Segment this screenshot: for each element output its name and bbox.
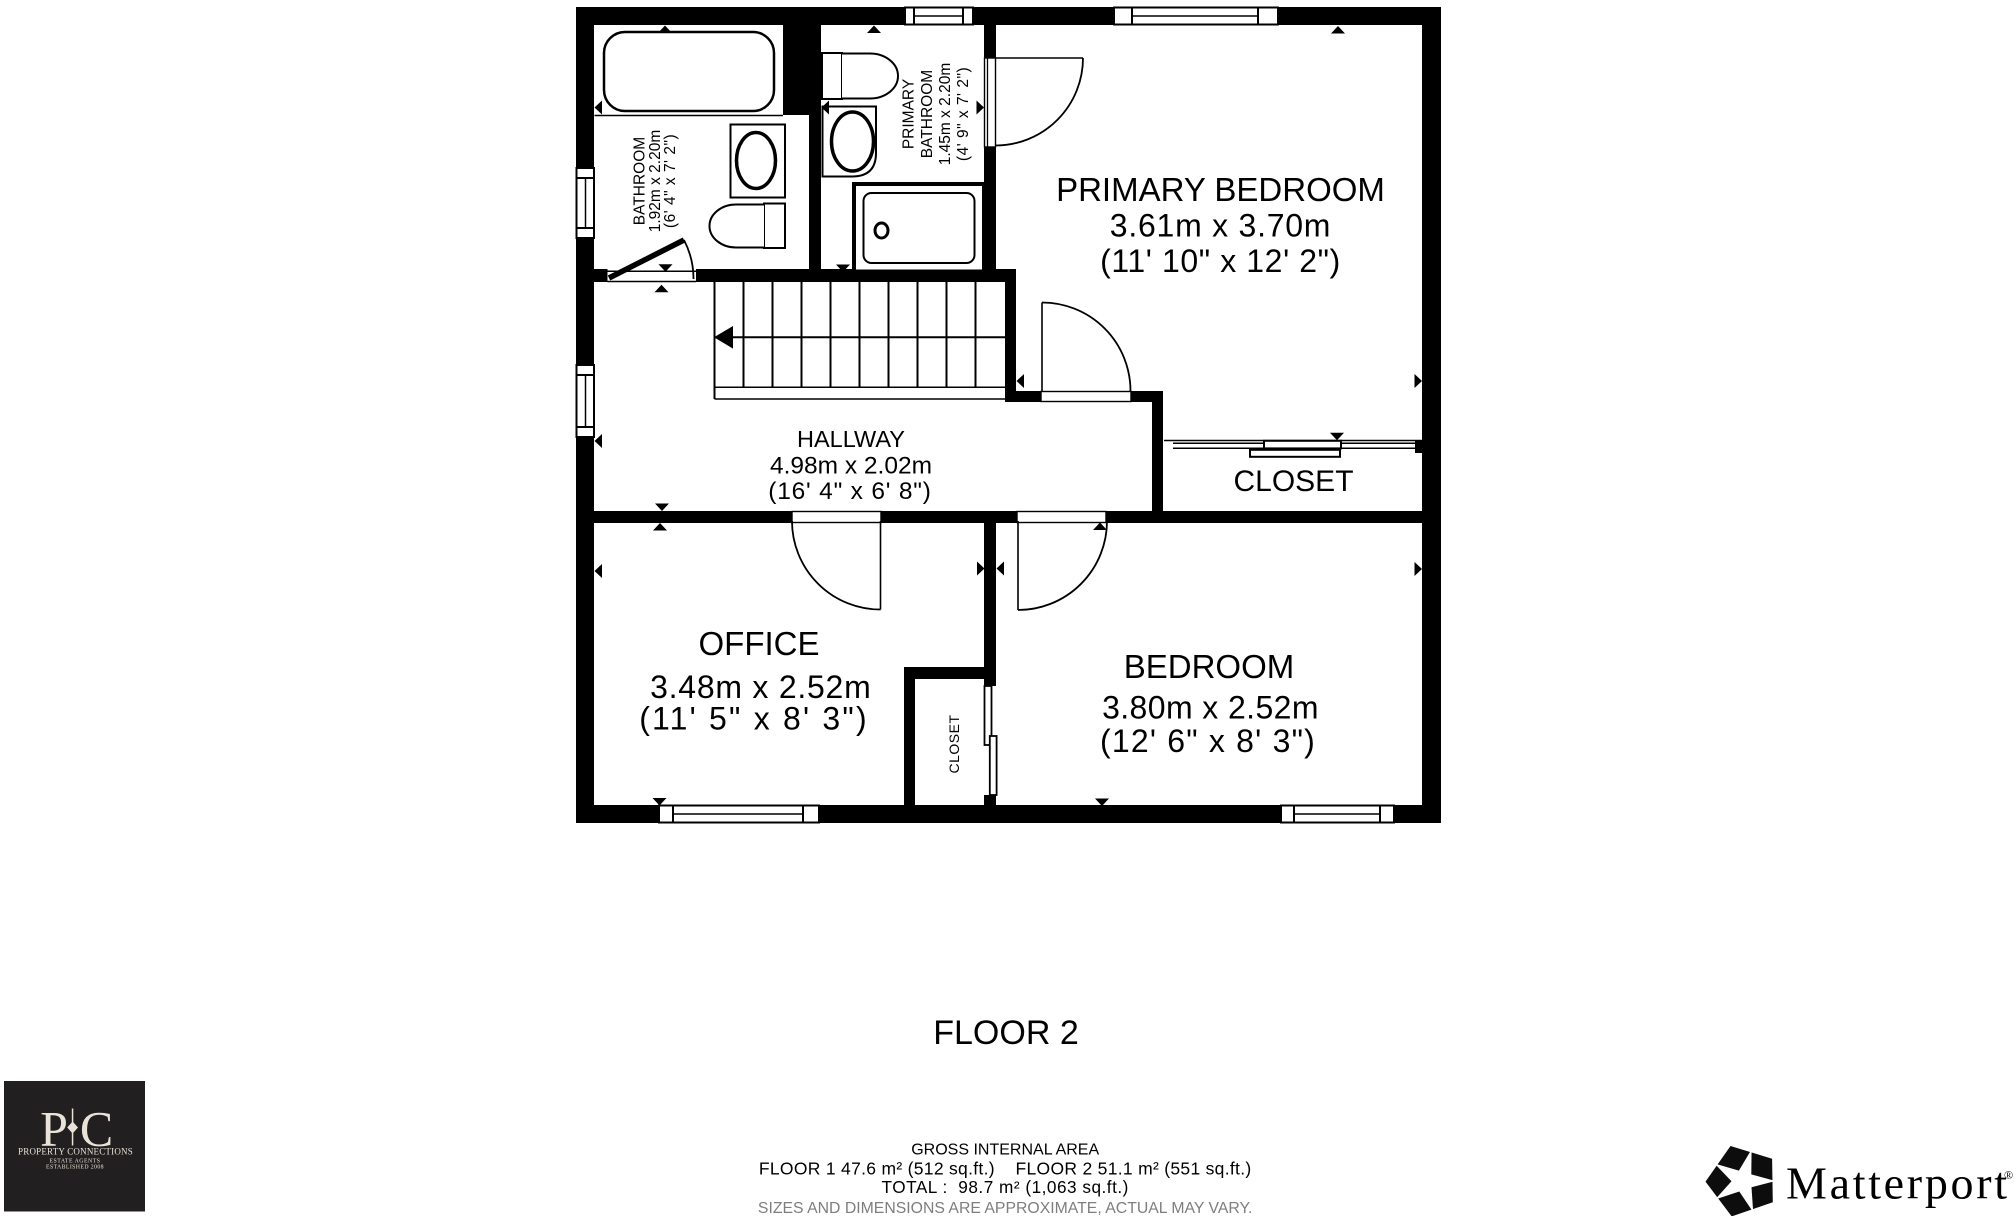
svg-text:(4' 9" x 7' 2"): (4' 9" x 7' 2") <box>955 67 972 161</box>
svg-text:4.98m x 2.02m: 4.98m x 2.02m <box>770 453 932 480</box>
svg-text:FLOOR 2: FLOOR 2 <box>933 1014 1078 1052</box>
svg-text:PROPERTY CONNECTIONS: PROPERTY CONNECTIONS <box>18 1147 133 1157</box>
svg-text:GROSS INTERNAL AREA: GROSS INTERNAL AREA <box>911 1142 1099 1159</box>
svg-text:OFFICE: OFFICE <box>699 625 820 662</box>
svg-text:(11' 5" x 8' 3"): (11' 5" x 8' 3") <box>639 701 869 737</box>
svg-text:(6' 4" x 7' 2"): (6' 4" x 7' 2") <box>662 134 679 228</box>
svg-text:(11' 10" x 12' 2"): (11' 10" x 12' 2") <box>1100 243 1341 279</box>
svg-text:ESTABLISHED 2008: ESTABLISHED 2008 <box>46 1165 104 1171</box>
svg-text:Matterport: Matterport <box>1786 1158 2010 1209</box>
svg-text:BATHROOM: BATHROOM <box>632 137 649 225</box>
svg-text:(12' 6" x 8' 3"): (12' 6" x 8' 3") <box>1100 723 1316 759</box>
svg-text:SIZES AND DIMENSIONS ARE APPRO: SIZES AND DIMENSIONS ARE APPROXIMATE, AC… <box>758 1200 1253 1216</box>
svg-text:HALLWAY: HALLWAY <box>797 426 905 452</box>
svg-text:(16' 4" x 6' 8"): (16' 4" x 6' 8") <box>768 478 931 505</box>
svg-text:CLOSET: CLOSET <box>1233 465 1353 498</box>
svg-text:3.80m x 2.52m: 3.80m x 2.52m <box>1102 690 1319 726</box>
svg-text:BATHROOM: BATHROOM <box>919 70 936 158</box>
svg-text:1.45m x 2.20m: 1.45m x 2.20m <box>937 63 954 166</box>
svg-text:PRIMARY: PRIMARY <box>901 79 918 149</box>
svg-text:BEDROOM: BEDROOM <box>1124 648 1295 685</box>
svg-text:®: ® <box>2004 1168 2013 1182</box>
svg-text:FLOOR 1 47.6 m² (512 sq.ft.): FLOOR 1 47.6 m² (512 sq.ft.) FLOOR 2 51.… <box>759 1159 1252 1179</box>
svg-text:PRIMARY BEDROOM: PRIMARY BEDROOM <box>1056 171 1385 208</box>
svg-text:TOTAL : 98.7 m² (1,063 sq.ft.: TOTAL : 98.7 m² (1,063 sq.ft.) <box>882 1177 1129 1197</box>
svg-text:CLOSET: CLOSET <box>946 714 962 773</box>
svg-text:3.61m x 3.70m: 3.61m x 3.70m <box>1110 208 1331 244</box>
